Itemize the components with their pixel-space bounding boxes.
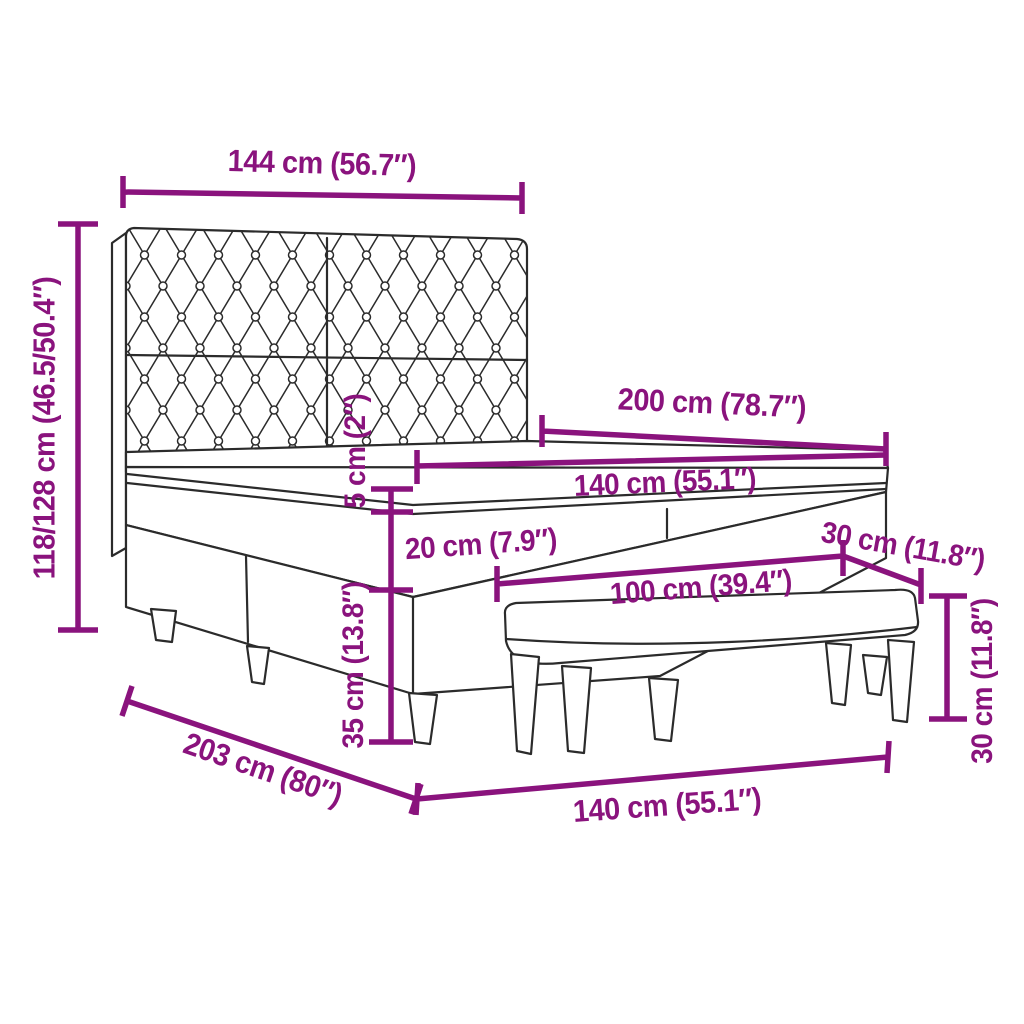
bench-leg xyxy=(888,640,914,722)
dimension-line-total-height xyxy=(58,224,98,630)
bed-and-bench-line-drawing xyxy=(0,0,1024,1024)
bench-leg xyxy=(511,654,539,754)
bed-leg xyxy=(409,693,437,744)
headboard-side-edge xyxy=(112,233,126,556)
dim-label-bed-length: 200 cm (78.7″) xyxy=(617,383,807,422)
bench-leg xyxy=(826,643,851,705)
bed-leg xyxy=(151,609,176,642)
dimension-diagram: 144 cm (56.7″) 118/128 cm (46.5/50.4″) 2… xyxy=(0,0,1024,1024)
dim-label-topper-thickness: 5 cm (2″) xyxy=(341,394,371,509)
bench-leg xyxy=(562,666,591,753)
bench-leg xyxy=(863,655,887,695)
bed-leg xyxy=(247,646,269,684)
dimension-line-total-length xyxy=(122,686,421,814)
dimension-line-bench-height xyxy=(929,596,967,719)
bench-leg xyxy=(649,678,678,741)
bench xyxy=(505,590,918,754)
dim-label-bench-height: 30 cm (11.8″) xyxy=(968,598,998,764)
dimension-line-headboard-width xyxy=(123,176,522,214)
dim-label-headboard-width: 144 cm (56.7″) xyxy=(227,145,416,181)
dim-label-total-height: 118/128 cm (46.5/50.4″) xyxy=(29,277,60,580)
dim-label-base-height: 35 cm (13.8″) xyxy=(339,581,369,748)
